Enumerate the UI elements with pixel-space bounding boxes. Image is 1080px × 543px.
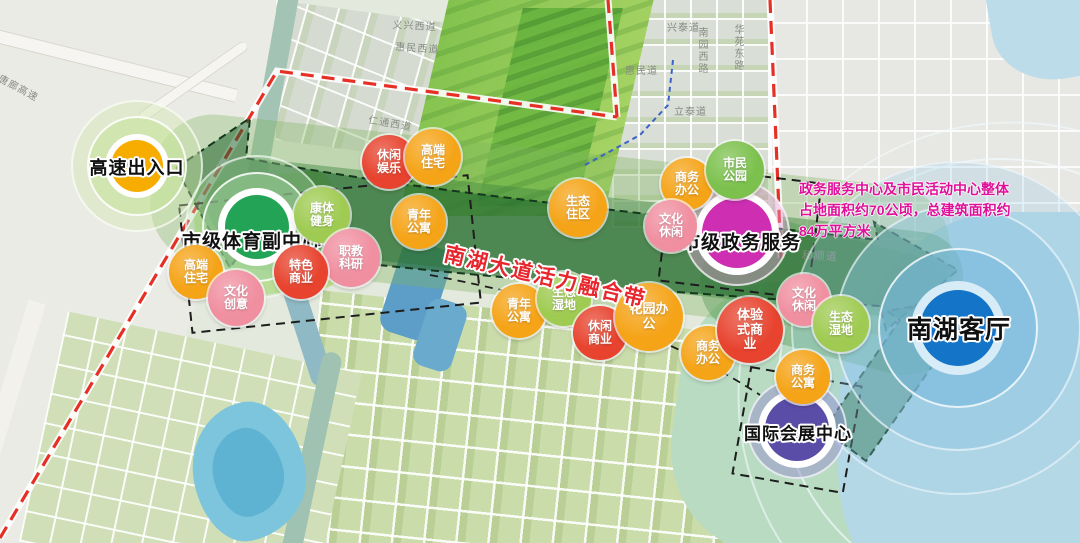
annotation-line: 84万平方米 [799,221,1011,242]
road-label-litai-rd: 立泰道 [674,103,707,118]
badge-label: 康体健身 [308,202,336,229]
badge-label: 商务办公 [673,171,701,198]
badge-label: 商务办公 [694,340,722,367]
road-label-nanyuan-west-rd: 南园西路 [694,27,709,75]
badge-cultural-leisure-mid: 文化休闲 [645,200,697,252]
badge-label: 文化休闲 [657,213,685,240]
badge-eco-wetland-east: 生态湿地 [813,296,869,352]
badge-cultural-creativity: 文化创意 [208,270,264,326]
badge-label: 商务公寓 [789,364,817,391]
badge-youth-apartment-north: 青年公寓 [392,195,446,249]
nanhu-living-room-label: 南湖客厅 [907,310,1011,346]
badge-label: 生态湿地 [827,311,855,338]
badge-citizen-park: 市民公园 [706,141,764,199]
badge-label: 市民公园 [721,157,749,184]
badge-label: 体验式商业 [735,308,765,352]
badge-label: 生态住区 [564,195,592,222]
annotation-line: 占地面积约70公顷，总建筑面积约 [799,200,1011,221]
road-label-yixing-west-rd: 义兴西道 [392,16,437,33]
badge-specialty-commerce: 特色商业 [274,245,328,299]
badge-label: 休闲娱乐 [375,149,403,176]
badge-label: 文化休闲 [790,287,818,314]
road-label-huimin-west-rd: 惠民西道 [395,38,440,56]
badge-label: 青年公寓 [405,209,433,236]
badge-vocational-research: 职教科研 [322,229,380,287]
annotation-line: 政务服务中心及市民活动中心整体 [799,179,1011,200]
government-annotation: 政务服务中心及市民活动中心整体 占地面积约70公顷，总建筑面积约 84万平方米 [799,179,1011,242]
planning-map: 唐廊高速义兴西道惠民西道仁通西道兴泰道惠民道立泰道南园西路华苑东路和顺道 高速出… [0,0,1080,543]
government-service-label: 市级政务服务 [681,228,801,255]
badge-label: 青年公寓 [505,298,533,325]
badge-label: 职教科研 [337,245,365,272]
intl-expo-center-label: 国际会展中心 [744,420,852,445]
badge-label: 特色商业 [287,259,315,286]
expressway-exit-label: 高速出入口 [90,154,185,180]
badge-business-apartment: 商务公寓 [776,350,830,404]
badge-label: 休闲商业 [586,320,614,347]
road-label-huayuan-east-rd: 华苑东路 [730,24,745,72]
badge-experiential-commerce: 体验式商业 [717,297,783,363]
badge-high-end-residence-north: 高端住宅 [405,129,461,185]
badge-label: 高端住宅 [182,259,210,286]
badge-eco-residence: 生态住区 [549,179,607,237]
badge-label: 文化创意 [222,285,250,312]
road-label-huimin-rd: 惠民道 [625,62,658,77]
badge-label: 高端住宅 [419,144,447,171]
